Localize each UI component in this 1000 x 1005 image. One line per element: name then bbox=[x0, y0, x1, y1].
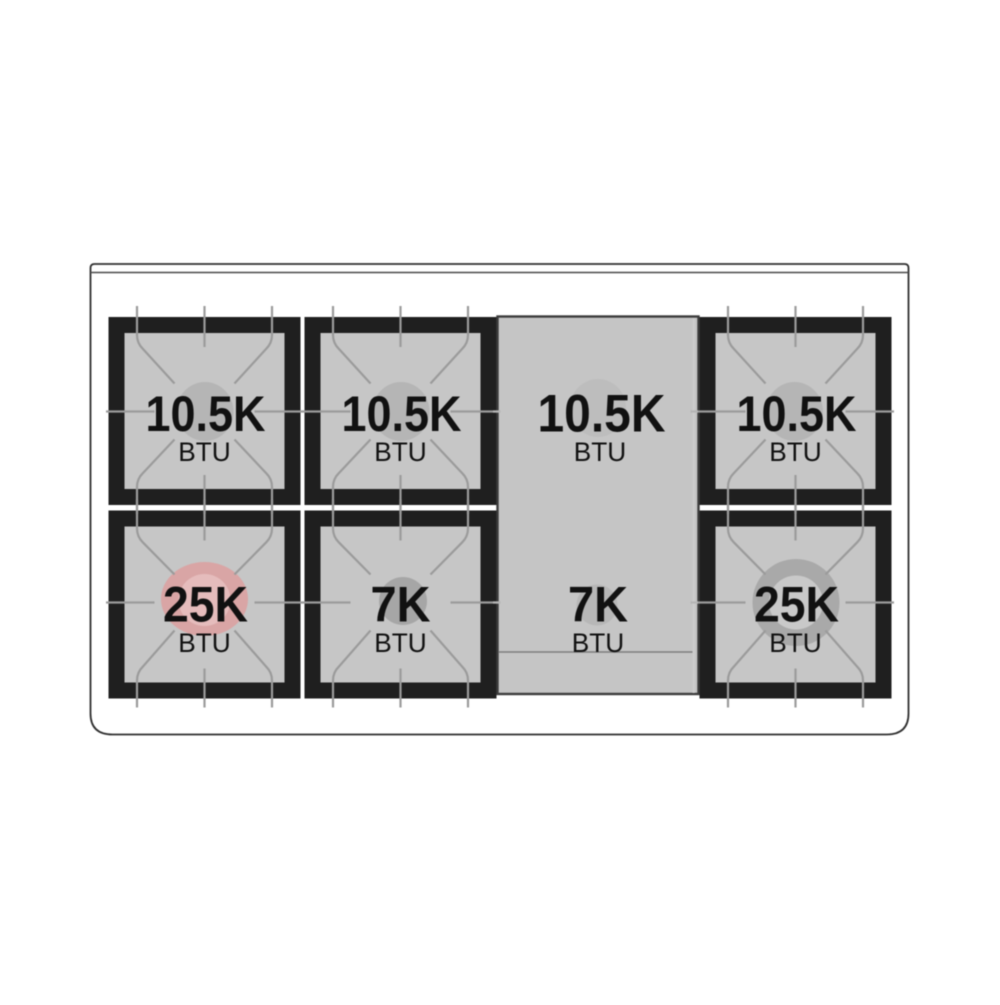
svg-text:BTU: BTU bbox=[178, 628, 231, 658]
svg-text:BTU: BTU bbox=[574, 437, 627, 467]
svg-text:BTU: BTU bbox=[769, 437, 822, 467]
svg-text:10.5K: 10.5K bbox=[146, 386, 266, 442]
svg-text:10.5K: 10.5K bbox=[342, 386, 462, 442]
svg-text:7K: 7K bbox=[371, 577, 431, 633]
svg-text:BTU: BTU bbox=[374, 628, 427, 658]
svg-text:BTU: BTU bbox=[374, 437, 427, 467]
svg-text:BTU: BTU bbox=[178, 437, 231, 467]
svg-text:BTU: BTU bbox=[769, 628, 822, 658]
svg-text:10.5K: 10.5K bbox=[538, 385, 666, 444]
svg-text:BTU: BTU bbox=[572, 628, 625, 658]
svg-text:25K: 25K bbox=[163, 577, 248, 633]
svg-text:10.5K: 10.5K bbox=[737, 386, 857, 442]
svg-text:7K: 7K bbox=[568, 577, 628, 633]
svg-text:25K: 25K bbox=[754, 577, 839, 633]
